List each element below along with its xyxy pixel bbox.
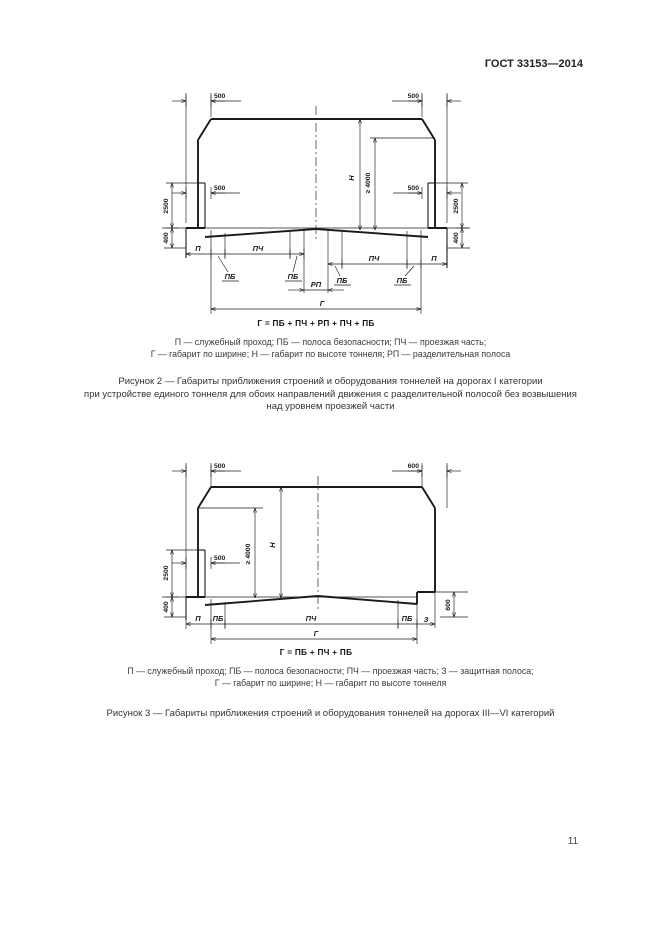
dim-top-right: 600 xyxy=(408,463,420,470)
dim-wall-height-left: 2500 xyxy=(163,565,170,580)
zone-safety-1: ПБ xyxy=(225,272,236,281)
road-surface xyxy=(205,596,318,605)
dim-top-right: 500 xyxy=(408,93,420,100)
dim-width-gauge: Г xyxy=(314,629,319,638)
figure2-formula: Г = ПБ + ПЧ + РП + ПЧ + ПБ xyxy=(257,319,374,328)
figure3-legend-line2: Г — габарит по ширине; Н — габарит по вы… xyxy=(0,678,661,690)
figure2-diagram: 500 500 Н ≥ 4000 500 500 2500 400 xyxy=(148,80,488,338)
document-number: ГОСТ 33153—2014 xyxy=(0,58,583,70)
zone-safety-left: ПБ xyxy=(213,614,224,623)
zone-safety-2: ПБ xyxy=(288,272,299,281)
dim-curb-right: 400 xyxy=(453,232,460,244)
figure2-legend-line2: Г — габарит по ширине; Н — габарит по вы… xyxy=(0,349,661,361)
figure3-legend-line1: П — служебный проход; ПБ — полоса безопа… xyxy=(0,666,661,678)
dim-top-left: 500 xyxy=(214,463,226,470)
figure2-legend-line1: П — служебный проход; ПБ — полоса безопа… xyxy=(0,337,661,349)
zone-safety-4: ПБ xyxy=(397,276,408,285)
zone-service-left: П xyxy=(195,244,201,253)
dim-min-clearance: ≥ 4000 xyxy=(245,543,252,564)
figure2-legend: П — служебный проход; ПБ — полоса безопа… xyxy=(0,337,661,360)
zone-protective: З xyxy=(424,615,429,624)
dim-width-gauge: Г xyxy=(320,299,325,308)
dim-divider-strip: РП xyxy=(311,280,322,289)
zone-service-right: П xyxy=(431,254,437,263)
dim-height-H: Н xyxy=(268,542,277,548)
road-surface xyxy=(205,229,316,237)
dim-wall-height-right: 2500 xyxy=(453,198,460,213)
dim-curb-left: 400 xyxy=(163,232,170,244)
zone-safety-right: ПБ xyxy=(402,614,413,623)
figure2-caption: Рисунок 2 — Габариты приближения строени… xyxy=(0,376,661,414)
page-number: 11 xyxy=(555,836,591,847)
dim-top-left: 500 xyxy=(214,93,226,100)
dim-walkway-right: 500 xyxy=(408,185,420,192)
figure3-formula: Г = ПБ + ПЧ + ПБ xyxy=(280,648,353,657)
zone-service: П xyxy=(195,614,201,623)
figure3-caption: Рисунок 3 — Габариты приближения строени… xyxy=(0,708,661,721)
figure3-legend: П — служебный проход; ПБ — полоса безопа… xyxy=(0,666,661,689)
zone-carriageway-right: ПЧ xyxy=(369,254,380,263)
figure3-diagram: 500 600 ≥ 4000 Н 500 2500 400 600 xyxy=(148,450,488,666)
dim-walkway-left: 500 xyxy=(214,185,226,192)
zone-carriageway-left: ПЧ xyxy=(253,244,264,253)
dim-walkway-left: 500 xyxy=(214,555,226,562)
dim-min-clearance: ≥ 4000 xyxy=(365,172,372,193)
dim-height-H: Н xyxy=(347,175,356,181)
zone-carriageway: ПЧ xyxy=(306,614,317,623)
dim-wall-height-left: 2500 xyxy=(163,198,170,213)
dim-curb-right: 600 xyxy=(445,599,452,611)
dim-curb-left: 400 xyxy=(163,601,170,613)
document-page: ГОСТ 33153—2014 xyxy=(0,0,661,935)
zone-safety-3: ПБ xyxy=(337,276,348,285)
